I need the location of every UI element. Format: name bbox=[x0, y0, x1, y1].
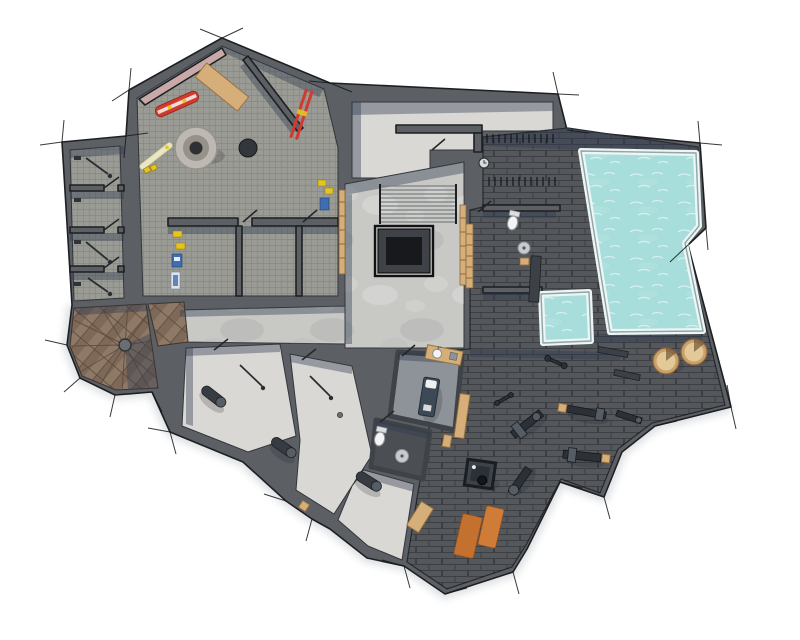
ladder-shelf-right bbox=[460, 205, 466, 285]
wing-divider-3 bbox=[70, 266, 104, 272]
stool bbox=[239, 139, 257, 157]
wing-divider-2b bbox=[118, 227, 124, 233]
lobby-l-wall bbox=[396, 125, 482, 133]
spa-wooden-step bbox=[520, 258, 529, 265]
spiral-stair-post bbox=[119, 339, 131, 351]
floor-plan-canvas bbox=[0, 0, 800, 640]
gym-threshold-2 bbox=[442, 434, 452, 447]
wing-divider-2 bbox=[70, 227, 104, 233]
locker-wall-h2 bbox=[252, 218, 338, 226]
locker-wall-h1 bbox=[168, 218, 238, 226]
locker-wall-v1 bbox=[236, 226, 242, 296]
plunge-pool-ripples bbox=[541, 292, 591, 343]
stair-void-opening bbox=[386, 237, 422, 265]
locker-wall-v2 bbox=[296, 226, 302, 296]
lobby-l-wall-2 bbox=[474, 133, 482, 152]
wing-divider-1 bbox=[70, 185, 104, 191]
boot-dryer bbox=[175, 127, 217, 169]
spa-bench bbox=[529, 256, 541, 302]
wing-divider-1b bbox=[118, 185, 124, 191]
floor-drain bbox=[337, 412, 342, 417]
ladder-shelf-left bbox=[339, 190, 345, 274]
floor-plan-svg bbox=[0, 0, 800, 640]
wing-divider-3b bbox=[118, 266, 124, 272]
plunge-pool bbox=[541, 292, 591, 343]
spa-divider-1 bbox=[483, 205, 560, 211]
